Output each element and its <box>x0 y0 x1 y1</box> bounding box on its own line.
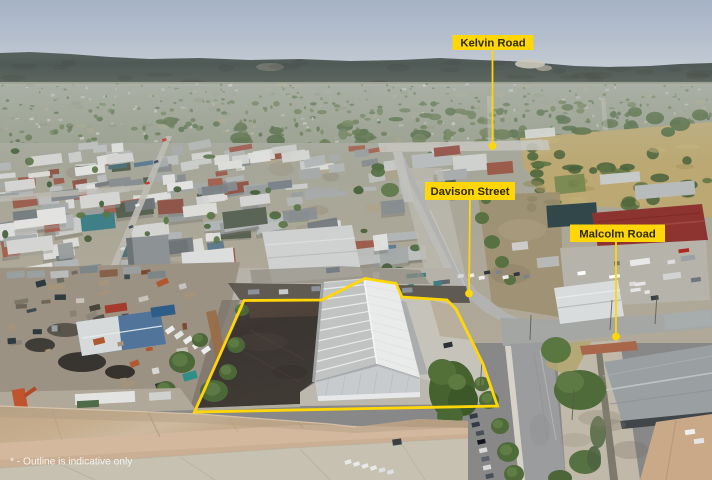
svg-text:* - Outline is indicative only: * - Outline is indicative only <box>10 457 133 468</box>
svg-text:Malcolm Road: Malcolm Road <box>579 228 656 240</box>
svg-text:Kelvin Road: Kelvin Road <box>460 38 525 50</box>
svg-text:Davison Street: Davison Street <box>430 186 509 198</box>
